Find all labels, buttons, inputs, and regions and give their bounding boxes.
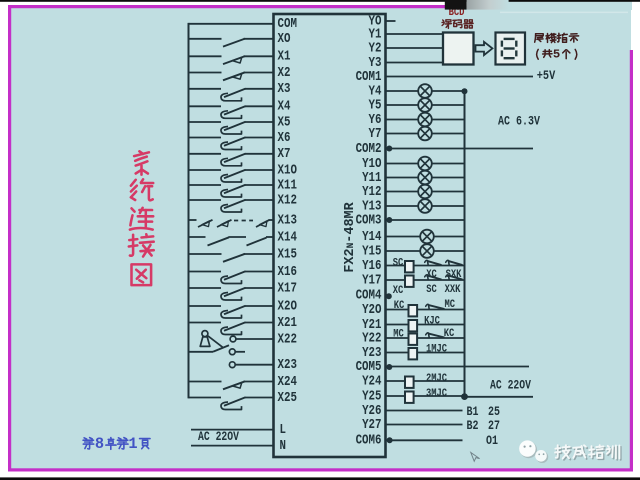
svg-text:Y25: Y25 — [362, 388, 381, 403]
svg-text:X2O: X2O — [278, 298, 297, 313]
svg-text:COM1: COM1 — [356, 69, 382, 84]
svg-text:MC: MC — [445, 298, 456, 310]
svg-text:Y12: Y12 — [362, 184, 381, 199]
svg-text:X24: X24 — [278, 374, 297, 389]
svg-text:+5V: +5V — [537, 69, 556, 83]
svg-text:X22: X22 — [278, 331, 297, 346]
svg-text:X2: X2 — [278, 65, 291, 80]
svg-text:KJC: KJC — [424, 315, 440, 327]
svg-text:27: 27 — [488, 420, 500, 433]
svg-text:B1: B1 — [467, 406, 479, 419]
svg-text:COM3: COM3 — [356, 212, 382, 227]
svg-text:Y17: Y17 — [362, 272, 381, 287]
svg-text:8: 8 — [95, 435, 104, 453]
svg-text:X21: X21 — [278, 315, 297, 330]
svg-text:X3: X3 — [278, 81, 291, 96]
svg-text:L: L — [280, 422, 286, 437]
svg-text:X6: X6 — [278, 130, 291, 145]
svg-text:COM6: COM6 — [356, 433, 382, 448]
svg-text:X7: X7 — [278, 146, 291, 161]
svg-text:B2: B2 — [467, 420, 479, 433]
svg-text:X25: X25 — [278, 390, 297, 405]
svg-text:X12: X12 — [278, 192, 297, 207]
svg-text:N: N — [280, 438, 286, 453]
svg-text:O1: O1 — [486, 435, 498, 448]
svg-text:25: 25 — [488, 406, 500, 419]
svg-text:SC: SC — [426, 283, 437, 295]
svg-text:Y16: Y16 — [362, 258, 381, 273]
svg-text:Y2O: Y2O — [362, 302, 381, 317]
svg-text:X15: X15 — [278, 246, 297, 261]
svg-text:5: 5 — [553, 47, 560, 61]
svg-text:X16: X16 — [278, 264, 297, 279]
svg-text:X5: X5 — [278, 114, 291, 129]
svg-text:XO: XO — [278, 31, 291, 46]
svg-text:3MJC: 3MJC — [426, 387, 447, 399]
svg-text:Y5: Y5 — [369, 97, 382, 112]
svg-text:X14: X14 — [278, 229, 297, 244]
svg-text:Y22: Y22 — [362, 330, 381, 345]
svg-text:X11: X11 — [278, 177, 297, 192]
svg-text:COM: COM — [278, 16, 297, 31]
svg-text:1MJC: 1MJC — [426, 343, 447, 355]
svg-text:Y24: Y24 — [362, 373, 381, 388]
svg-text:X17: X17 — [278, 280, 297, 295]
svg-text:COM4: COM4 — [356, 287, 382, 302]
svg-text:Y7: Y7 — [369, 126, 382, 141]
svg-text:AC 22OV: AC 22OV — [490, 380, 531, 393]
svg-text:Y27: Y27 — [362, 417, 381, 432]
svg-text:KC: KC — [394, 299, 405, 311]
svg-text:X13: X13 — [278, 212, 297, 227]
svg-text:COM2: COM2 — [356, 141, 382, 156]
svg-text:AC 22OV: AC 22OV — [198, 431, 239, 444]
svg-text:Y2: Y2 — [369, 40, 382, 55]
svg-text:2MJC: 2MJC — [426, 372, 447, 384]
svg-text:AC 6.3V: AC 6.3V — [498, 116, 540, 129]
svg-text:XXK: XXK — [445, 283, 461, 295]
svg-text:KC: KC — [444, 327, 455, 339]
svg-text:Y15: Y15 — [362, 243, 381, 258]
svg-text:1: 1 — [128, 435, 137, 453]
svg-text:XC: XC — [393, 284, 404, 296]
svg-text:X4: X4 — [278, 99, 291, 114]
svg-text:Y14: Y14 — [362, 229, 381, 244]
svg-text:X1O: X1O — [278, 162, 297, 177]
svg-text:X1: X1 — [278, 49, 291, 64]
svg-text:SC: SC — [393, 257, 404, 269]
svg-text:MC: MC — [393, 328, 404, 340]
svg-text:X23: X23 — [278, 357, 297, 372]
svg-text:COM5: COM5 — [356, 359, 382, 374]
